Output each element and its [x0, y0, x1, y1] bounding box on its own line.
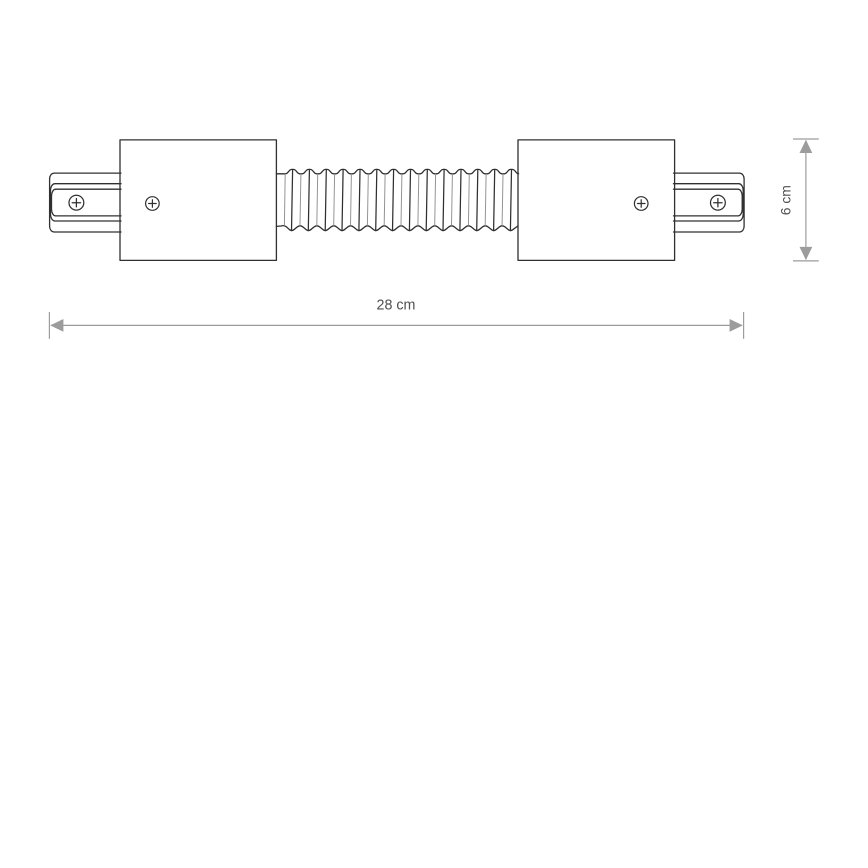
svg-text:28 cm: 28 cm	[377, 298, 416, 314]
svg-text:6 cm: 6 cm	[777, 185, 793, 215]
